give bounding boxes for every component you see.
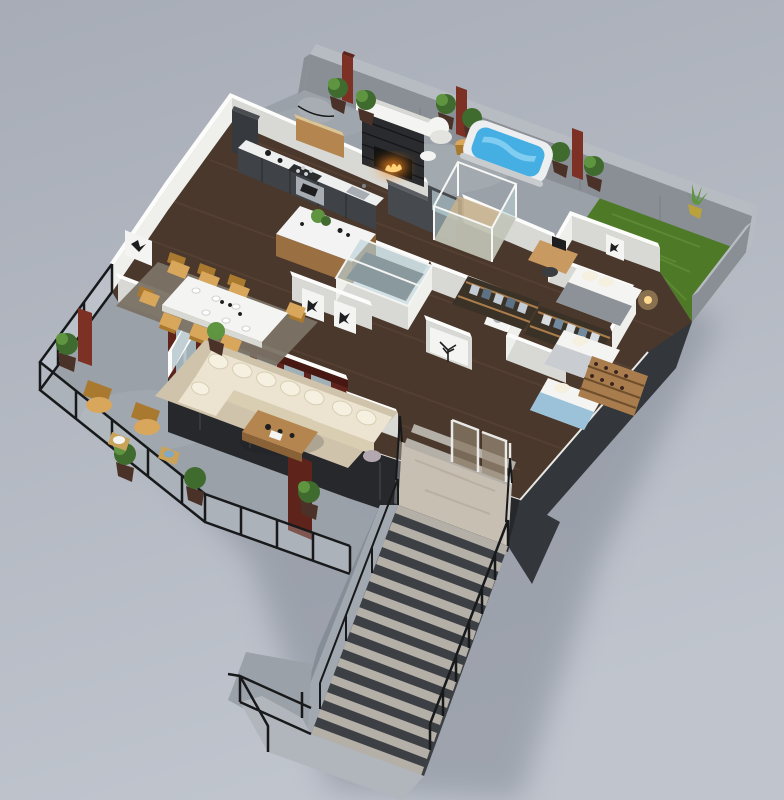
rust-column-3 [572, 128, 583, 180]
bed2-pillow [572, 336, 588, 346]
terrace-rust-column [78, 308, 92, 366]
lounge-chair-2-seat [134, 419, 160, 435]
gold-table-2-tray [164, 451, 174, 458]
plant-foliage-5 [550, 142, 570, 162]
side-table-top [420, 151, 436, 161]
rust-column [342, 54, 353, 104]
faucet [362, 184, 366, 188]
bed3-pillow [554, 383, 570, 393]
island-plant-2 [321, 216, 331, 226]
bedside-lamp [644, 296, 652, 304]
terrace-bush-3 [184, 467, 206, 489]
terrace-bush-5 [207, 322, 225, 340]
floor-plan-canvas [0, 0, 784, 800]
floor-pouf [363, 450, 381, 462]
terrace-bush-1hl [56, 333, 68, 345]
armchair-seat [430, 130, 452, 144]
desk-chair [542, 267, 558, 277]
floor-plan-render [0, 0, 784, 800]
terrace-bush-4hl [298, 481, 310, 493]
gold-table-1-tray [113, 436, 125, 444]
plant-foliage-3hl [436, 94, 448, 106]
bed1-pillow-2 [598, 277, 614, 287]
plant-foliage-6hl [584, 156, 596, 168]
lounge-chair-1-seat [86, 397, 112, 413]
plant-foliage-hl [328, 78, 340, 90]
bed1-pillow-1 [582, 271, 598, 281]
plant-foliage-2hl [356, 90, 368, 102]
